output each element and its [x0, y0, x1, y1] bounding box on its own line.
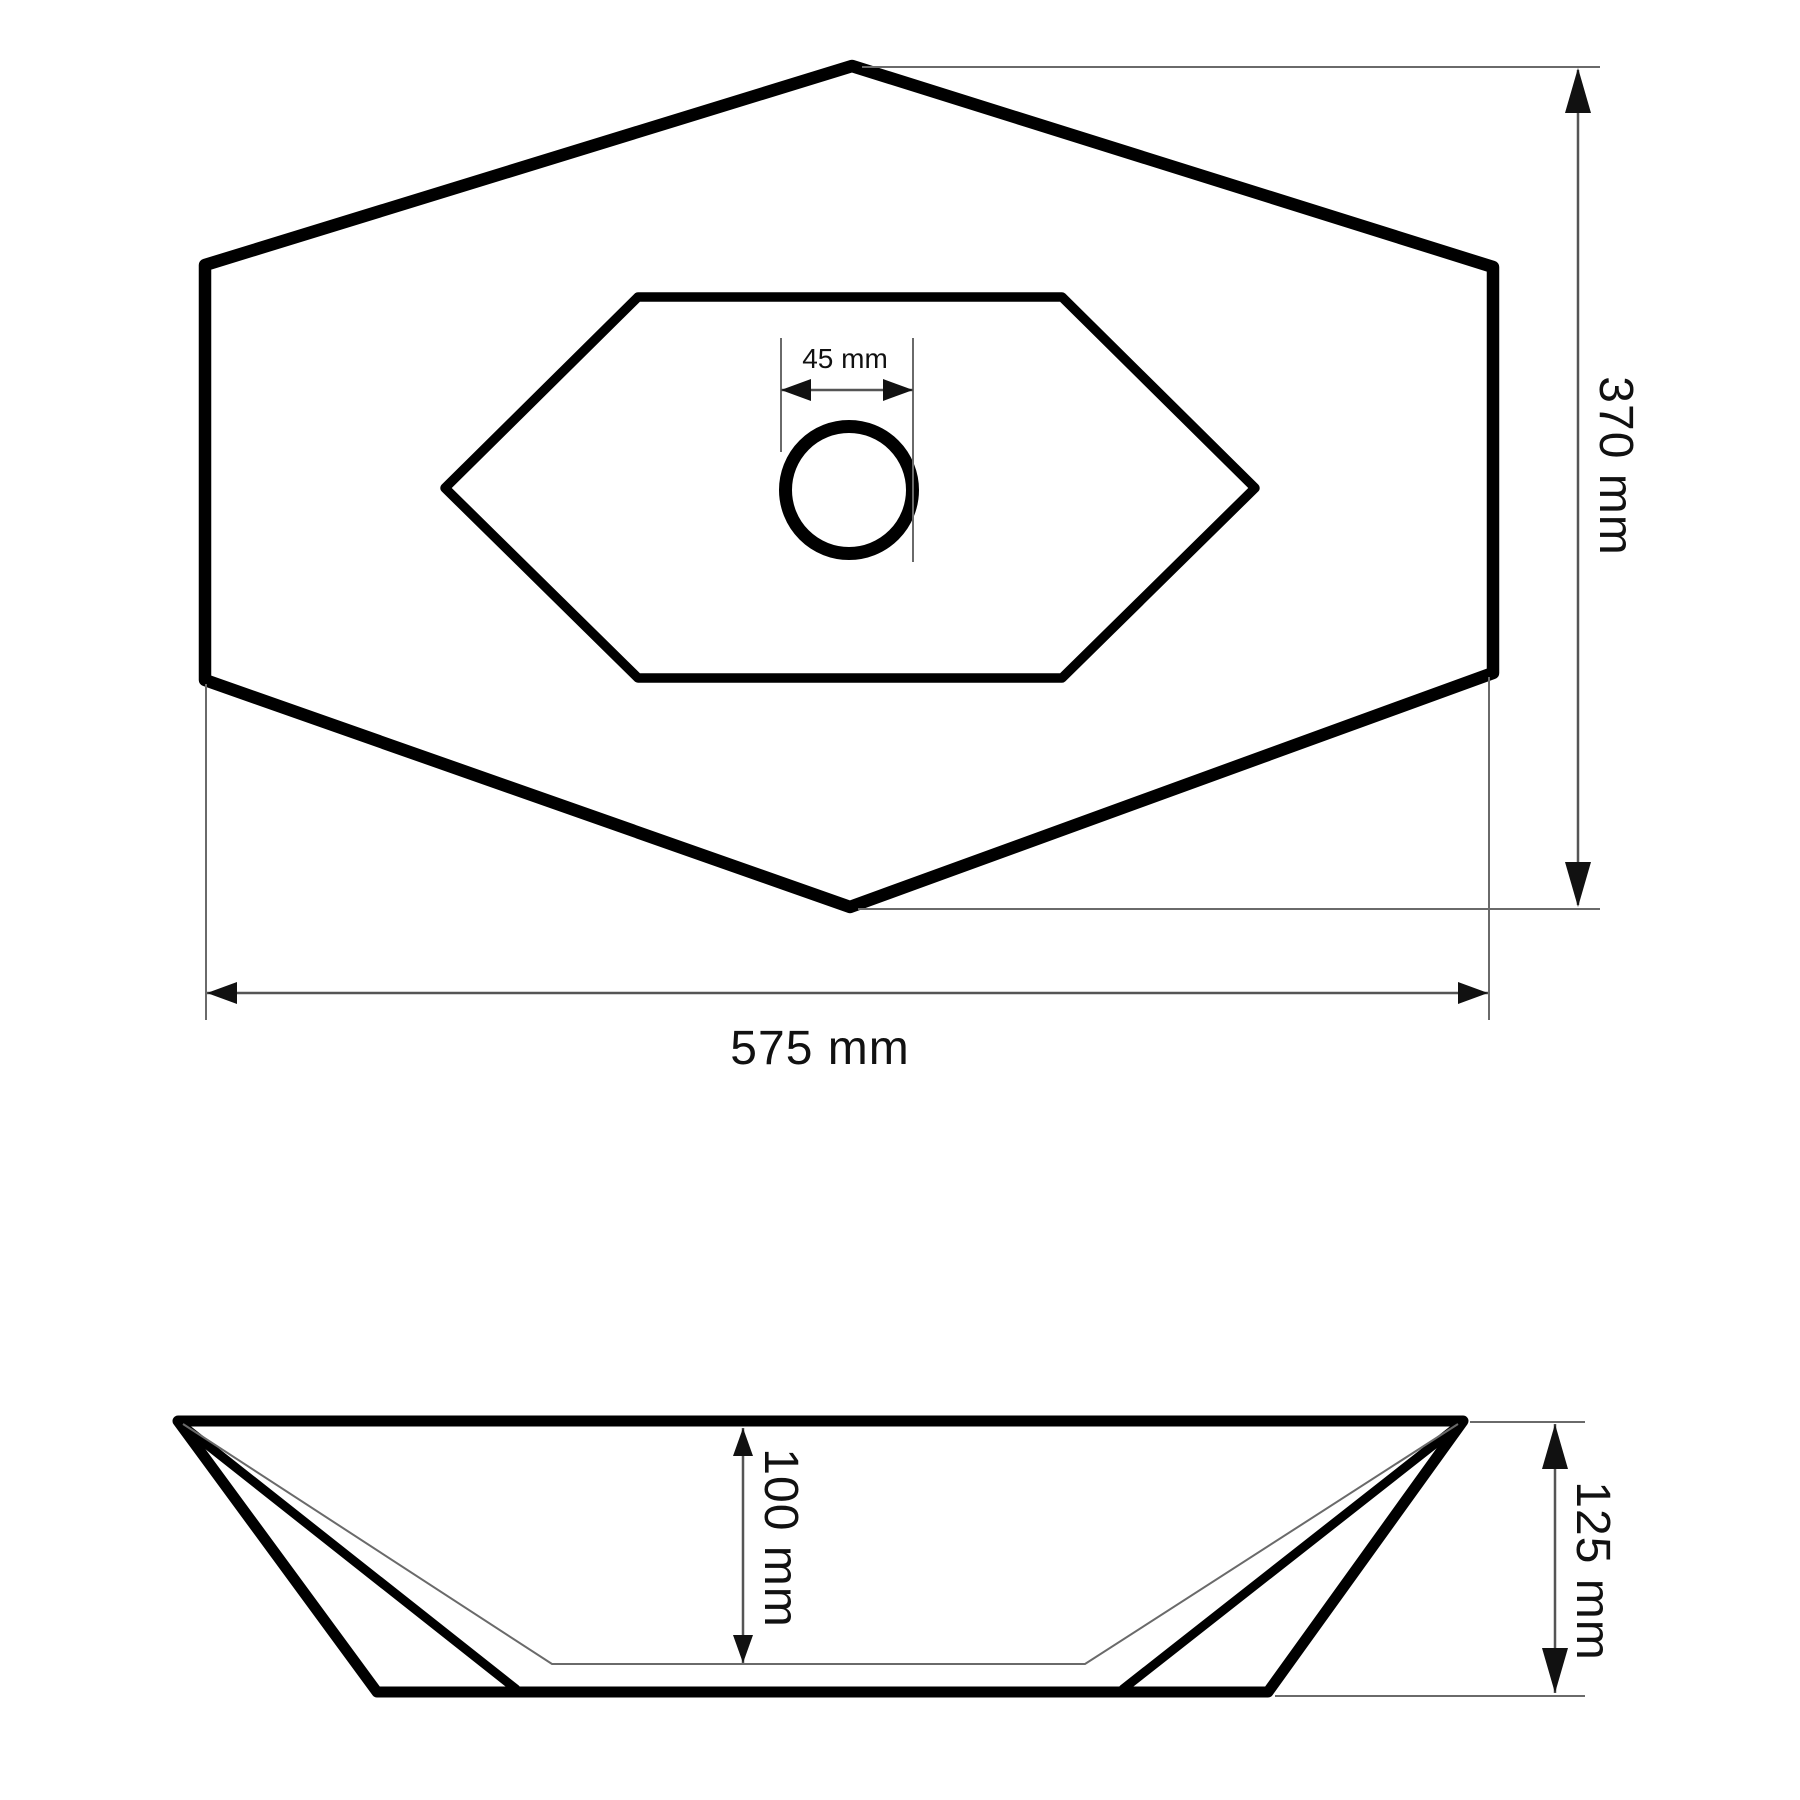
drain-dim-arrow-right-icon	[883, 379, 913, 401]
width-dim-arrow-right-icon	[1458, 982, 1488, 1004]
width-dimension: 575 mm	[206, 677, 1489, 1075]
width-dim-arrow-left-icon	[207, 982, 237, 1004]
overall-height-dimension: 125 mm	[1275, 1422, 1619, 1696]
inner-depth-label: 100 mm	[754, 1448, 807, 1627]
overall-height-label: 125 mm	[1566, 1481, 1619, 1660]
technical-drawing-canvas: 45 mm 370 mm 575 mm	[0, 0, 1800, 1800]
basin-width-label: 575 mm	[730, 1022, 909, 1075]
height-dim-arrow-down-icon	[1542, 1648, 1568, 1693]
drain-hole-circle	[786, 427, 913, 554]
depth-dim-arrow-up-icon	[1565, 68, 1591, 113]
drain-diameter-label: 45 mm	[802, 343, 888, 374]
basin-depth-label: 370 mm	[1589, 376, 1642, 555]
inner-bowl-surface-line	[183, 1424, 1458, 1664]
inner-depth-dimension: 100 mm	[733, 1428, 807, 1663]
side-view: 100 mm 125 mm	[178, 1421, 1619, 1696]
height-dim-arrow-up-icon	[1542, 1424, 1568, 1469]
outer-rim-outline	[205, 66, 1493, 907]
side-facet-edge-right	[1123, 1425, 1459, 1689]
side-profile-outline	[178, 1421, 1463, 1692]
depth-dim-arrow-down-icon	[1565, 862, 1591, 907]
inner-depth-arrow-down-icon	[733, 1635, 753, 1663]
drain-dim-arrow-left-icon	[781, 379, 811, 401]
inner-depth-arrow-up-icon	[733, 1428, 753, 1456]
top-view: 45 mm 370 mm 575 mm	[205, 66, 1642, 1075]
